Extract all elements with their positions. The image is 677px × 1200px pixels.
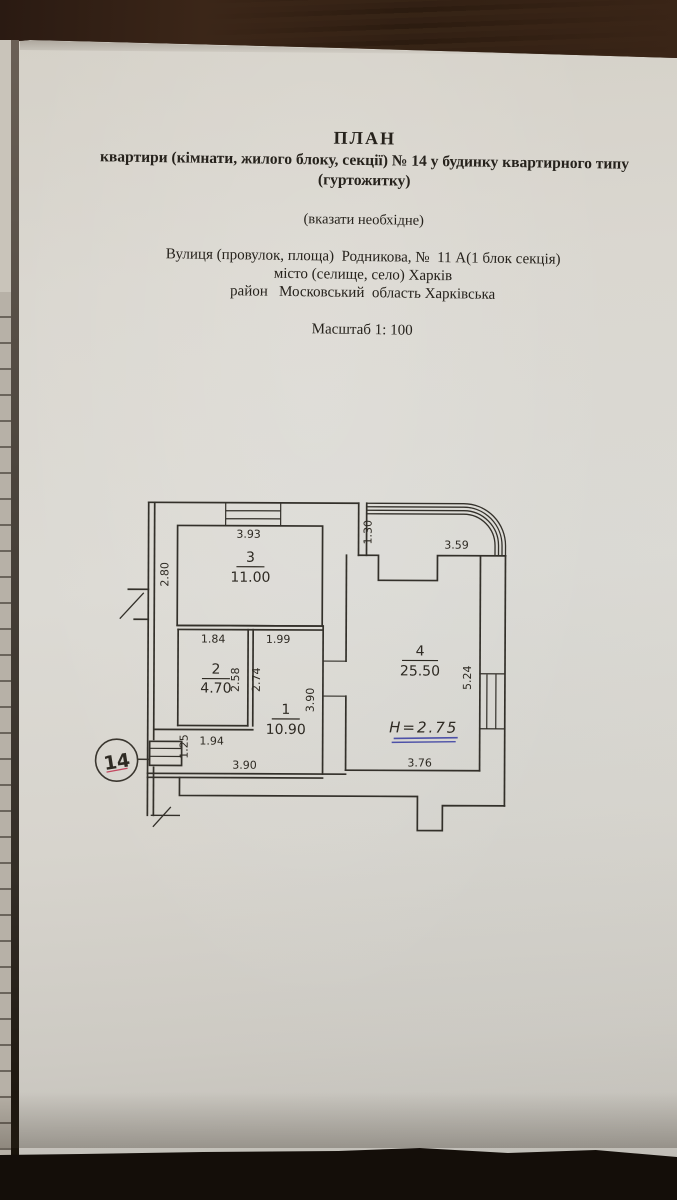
dim-balcony-left: 1.30: [362, 520, 375, 545]
fill-in-note: (вказати необхідне): [39, 207, 677, 233]
height-underline-1: [394, 737, 458, 738]
page-stack-edge: [0, 40, 11, 292]
dim-room3-width: 3.93: [236, 528, 261, 541]
dim-room1-bottom: 3.90: [232, 759, 257, 772]
room2-area: 4.70: [200, 681, 231, 697]
room3-area: 11.00: [230, 570, 270, 586]
room4-number: 4: [416, 643, 425, 659]
apartment-stamp: 14: [96, 739, 150, 781]
page-bottom-shadow: [0, 1092, 677, 1148]
room4-area: 25.50: [400, 663, 440, 679]
height-note-text: H=2.75: [389, 718, 458, 736]
height-underline-2: [392, 741, 456, 742]
room2-number: 2: [211, 662, 220, 678]
dim-room1-depth-right: 3.90: [304, 688, 317, 713]
dim-entry-height: 1.25: [178, 734, 191, 759]
dim-room2-width: 1.84: [201, 633, 226, 646]
room1-area: 10.90: [266, 722, 306, 738]
page-stack-edge-ruled: [0, 292, 11, 1160]
dim-room1-width: 1.99: [266, 633, 291, 646]
dim-room3-depth: 2.80: [158, 562, 171, 587]
dim-room2-bottom: 1.94: [199, 735, 224, 748]
stamp-number: 14: [102, 749, 131, 775]
balcony-curve: [366, 503, 505, 556]
dark-table-bottom: [0, 1146, 677, 1200]
room1-number: 1: [281, 702, 290, 718]
document-header: ПЛАН квартири (кімнати, жилого блоку, се…: [37, 123, 677, 343]
floor-plan: 3.93 2.80 1.84 1.99 2.58 2.74 1.94 1.25 …: [89, 477, 521, 859]
dim-room4-bottom: 3.76: [407, 756, 432, 769]
dim-balcony-top: 3.59: [444, 539, 469, 552]
dim-room4-right: 5.24: [461, 665, 474, 690]
photographed-document: ПЛАН квартири (кімнати, жилого блоку, се…: [0, 0, 677, 1200]
height-annotation: H=2.75: [389, 718, 458, 742]
binding-shadow: [11, 40, 19, 1160]
dim-room1-depth-left: 2.74: [250, 668, 263, 693]
room3-number: 3: [246, 550, 255, 566]
